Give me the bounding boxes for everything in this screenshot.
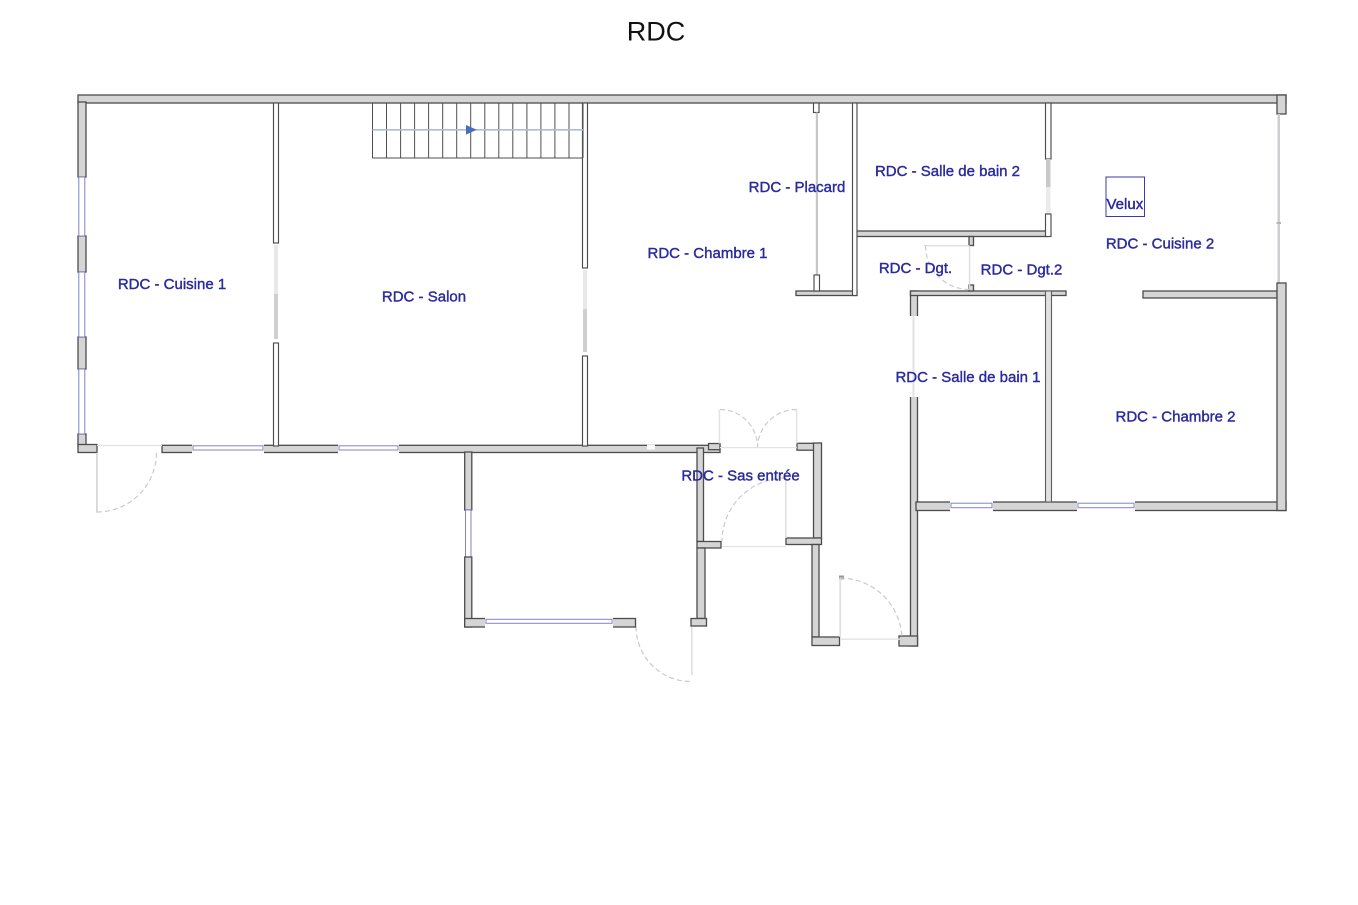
svg-text:RDC: RDC [627, 17, 686, 47]
svg-text:RDC - Salle de bain 1: RDC - Salle de bain 1 [895, 369, 1040, 386]
svg-text:RDC - Placard: RDC - Placard [749, 179, 846, 196]
svg-text:RDC - Cuisine 2: RDC - Cuisine 2 [1106, 236, 1214, 253]
svg-text:Velux: Velux [1107, 196, 1144, 213]
svg-text:RDC - Chambre 2: RDC - Chambre 2 [1115, 408, 1235, 425]
svg-text:RDC - Sas entrée: RDC - Sas entrée [681, 468, 799, 485]
svg-text:RDC - Dgt.2: RDC - Dgt.2 [981, 262, 1063, 279]
svg-text:RDC - Salon: RDC - Salon [382, 289, 466, 306]
svg-text:RDC - Chambre 1: RDC - Chambre 1 [647, 245, 767, 262]
svg-text:RDC - Dgt.: RDC - Dgt. [879, 260, 952, 277]
svg-text:RDC - Salle de bain 2: RDC - Salle de bain 2 [875, 163, 1020, 180]
svg-text:RDC - Cuisine 1: RDC - Cuisine 1 [118, 276, 226, 293]
